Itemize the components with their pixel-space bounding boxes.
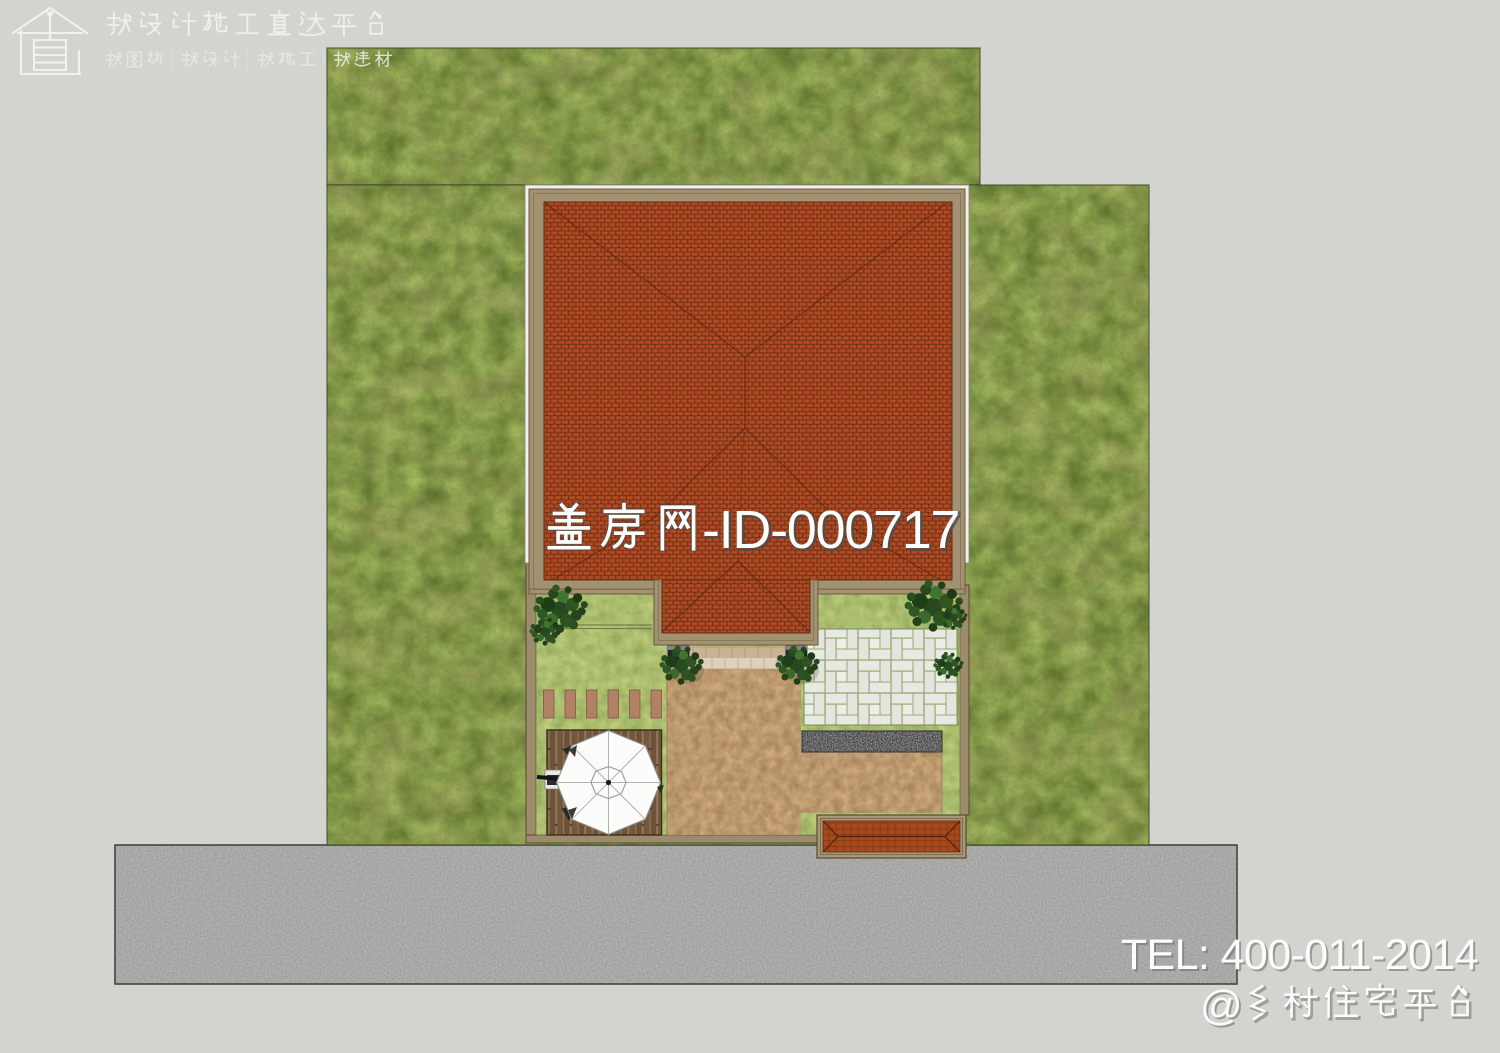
svg-text:-ID-000717: -ID-000717 xyxy=(702,500,959,560)
svg-text:TEL: 400-011-2014: TEL: 400-011-2014 xyxy=(1121,931,1478,979)
svg-text:@: @ xyxy=(1200,982,1243,1029)
